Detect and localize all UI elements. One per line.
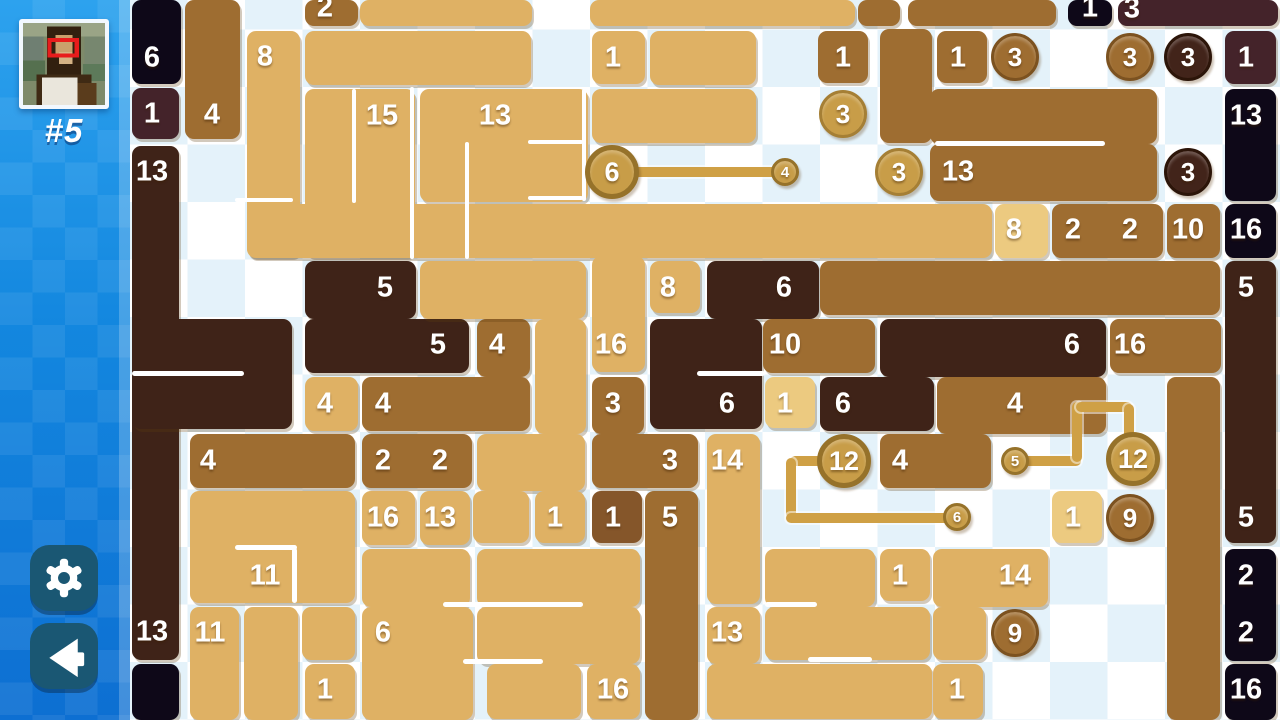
puzzle-piece[interactable] xyxy=(535,491,585,543)
piece-fold-gap xyxy=(528,196,583,200)
puzzle-piece[interactable] xyxy=(244,607,298,720)
piece-fold-gap xyxy=(697,371,765,376)
puzzle-piece[interactable] xyxy=(190,607,239,720)
puzzle-piece[interactable] xyxy=(587,664,640,719)
puzzle-piece[interactable] xyxy=(362,549,470,607)
piece-fold-gap xyxy=(465,142,469,259)
game-screen: { "level": { "label": "#5" }, "sidebar":… xyxy=(0,0,1280,720)
puzzle-piece[interactable] xyxy=(707,664,932,719)
puzzle-piece[interactable] xyxy=(933,549,1048,607)
puzzle-piece[interactable] xyxy=(305,0,358,26)
puzzle-piece[interactable] xyxy=(590,0,855,26)
puzzle-piece[interactable] xyxy=(1225,204,1276,258)
puzzle-piece[interactable] xyxy=(937,31,987,83)
puzzle-piece[interactable] xyxy=(362,377,530,431)
puzzle-piece[interactable] xyxy=(1068,0,1112,26)
hint-circle[interactable]: 3 xyxy=(819,90,867,138)
puzzle-piece[interactable] xyxy=(305,31,531,85)
sidebar: #5 xyxy=(0,0,130,720)
piece-fold-gap xyxy=(132,371,244,376)
back-arrow-icon xyxy=(42,634,86,678)
puzzle-piece[interactable] xyxy=(305,664,355,719)
puzzle-piece[interactable] xyxy=(190,434,355,488)
puzzle-piece[interactable] xyxy=(1110,319,1221,373)
puzzle-piece[interactable] xyxy=(1225,89,1276,201)
puzzle-piece[interactable] xyxy=(707,607,760,664)
puzzle-board[interactable]: 6113134281513161131113113168221086655444… xyxy=(130,0,1280,720)
puzzle-piece[interactable] xyxy=(420,89,588,202)
puzzle-piece[interactable] xyxy=(302,607,355,660)
puzzle-piece[interactable] xyxy=(477,434,585,491)
puzzle-piece[interactable] xyxy=(763,319,875,373)
puzzle-piece[interactable] xyxy=(592,31,645,84)
path-endpoint[interactable]: 6 xyxy=(585,145,639,199)
puzzle-piece[interactable] xyxy=(1225,549,1276,661)
puzzle-piece[interactable] xyxy=(880,549,930,601)
puzzle-piece[interactable] xyxy=(185,0,240,139)
piece-fold-gap xyxy=(352,89,356,203)
puzzle-piece[interactable] xyxy=(477,319,530,377)
puzzle-piece[interactable] xyxy=(362,491,415,545)
puzzle-piece[interactable] xyxy=(995,204,1048,258)
drawn-path-segment[interactable] xyxy=(786,513,962,523)
sidebar-edge-highlight xyxy=(119,0,130,720)
back-button[interactable] xyxy=(30,623,98,689)
puzzle-piece[interactable] xyxy=(362,607,473,720)
puzzle-piece[interactable] xyxy=(1118,0,1278,26)
puzzle-piece[interactable] xyxy=(880,434,991,488)
puzzle-piece[interactable] xyxy=(765,549,875,607)
settings-button[interactable] xyxy=(30,545,98,611)
puzzle-piece[interactable] xyxy=(707,434,760,604)
puzzle-piece[interactable] xyxy=(930,89,1157,144)
path-endpoint[interactable]: 5 xyxy=(1001,447,1029,475)
puzzle-piece[interactable] xyxy=(592,491,642,543)
puzzle-piece[interactable] xyxy=(132,88,179,139)
hint-circle[interactable]: 3 xyxy=(1164,33,1212,81)
puzzle-piece[interactable] xyxy=(765,377,815,428)
gear-icon xyxy=(42,556,86,600)
puzzle-piece[interactable] xyxy=(360,0,532,26)
puzzle-piece[interactable] xyxy=(1225,31,1276,84)
level-thumbnail-mona-lisa xyxy=(19,19,109,109)
piece-fold-gap xyxy=(808,657,872,662)
puzzle-piece[interactable] xyxy=(247,204,992,258)
path-endpoint[interactable]: 6 xyxy=(943,503,971,531)
puzzle-piece[interactable] xyxy=(1225,261,1276,543)
hint-circle[interactable]: 9 xyxy=(1106,494,1154,542)
puzzle-piece[interactable] xyxy=(1167,377,1220,720)
piece-fold-gap xyxy=(235,198,293,202)
puzzle-piece[interactable] xyxy=(535,319,586,434)
level-number-label: #5 xyxy=(0,112,128,150)
puzzle-piece[interactable] xyxy=(487,664,581,719)
puzzle-piece[interactable] xyxy=(933,607,986,660)
puzzle-piece[interactable] xyxy=(1052,204,1163,258)
path-endpoint[interactable]: 12 xyxy=(1106,432,1160,486)
piece-fold-gap xyxy=(443,602,583,607)
puzzle-piece[interactable] xyxy=(880,29,932,143)
puzzle-piece[interactable] xyxy=(592,89,756,143)
puzzle-piece[interactable] xyxy=(305,377,358,431)
puzzle-piece[interactable] xyxy=(933,664,983,719)
puzzle-piece[interactable] xyxy=(362,434,472,488)
puzzle-piece[interactable] xyxy=(305,261,416,319)
piece-fold-gap xyxy=(410,87,414,259)
puzzle-piece[interactable] xyxy=(592,377,644,434)
puzzle-piece[interactable] xyxy=(592,434,698,488)
hint-circle[interactable]: 3 xyxy=(991,33,1039,81)
puzzle-piece[interactable] xyxy=(650,261,700,313)
hint-circle[interactable]: 9 xyxy=(991,609,1039,657)
puzzle-piece[interactable] xyxy=(1167,204,1220,258)
puzzle-piece[interactable] xyxy=(820,377,934,431)
puzzle-piece[interactable] xyxy=(880,319,1106,377)
puzzle-piece[interactable] xyxy=(592,256,645,372)
path-endpoint[interactable]: 4 xyxy=(771,158,799,186)
puzzle-piece[interactable] xyxy=(132,0,181,84)
puzzle-piece[interactable] xyxy=(477,607,640,664)
path-endpoint[interactable]: 12 xyxy=(817,434,871,488)
hint-circle[interactable]: 3 xyxy=(1164,148,1212,196)
puzzle-piece[interactable] xyxy=(420,261,586,319)
puzzle-piece[interactable] xyxy=(473,491,529,543)
piece-fold-gap xyxy=(765,602,817,607)
hint-circle[interactable]: 3 xyxy=(875,148,923,196)
mona-lisa-pixel-art xyxy=(23,23,105,105)
puzzle-piece[interactable] xyxy=(930,144,1157,201)
puzzle-piece[interactable] xyxy=(858,0,900,26)
puzzle-piece[interactable] xyxy=(1225,664,1276,720)
puzzle-piece[interactable] xyxy=(818,31,868,83)
piece-fold-gap xyxy=(292,548,297,603)
piece-fold-gap xyxy=(935,141,1105,146)
puzzle-piece[interactable] xyxy=(707,261,819,319)
puzzle-piece[interactable] xyxy=(820,261,1220,315)
puzzle-piece[interactable] xyxy=(908,0,1056,26)
hint-circle[interactable]: 3 xyxy=(1106,33,1154,81)
puzzle-piece[interactable] xyxy=(420,491,470,545)
puzzle-piece[interactable] xyxy=(477,549,640,607)
puzzle-piece[interactable] xyxy=(765,607,930,660)
puzzle-piece[interactable] xyxy=(650,31,756,85)
piece-fold-gap xyxy=(463,659,543,664)
puzzle-piece[interactable] xyxy=(305,319,469,373)
puzzle-piece[interactable] xyxy=(1052,491,1102,543)
puzzle-piece[interactable] xyxy=(132,664,179,720)
piece-fold-gap xyxy=(528,140,583,144)
puzzle-piece[interactable] xyxy=(645,491,698,720)
piece-fold-gap xyxy=(582,89,586,201)
drawn-path-segment[interactable] xyxy=(786,458,796,518)
piece-fold-gap xyxy=(235,545,297,550)
